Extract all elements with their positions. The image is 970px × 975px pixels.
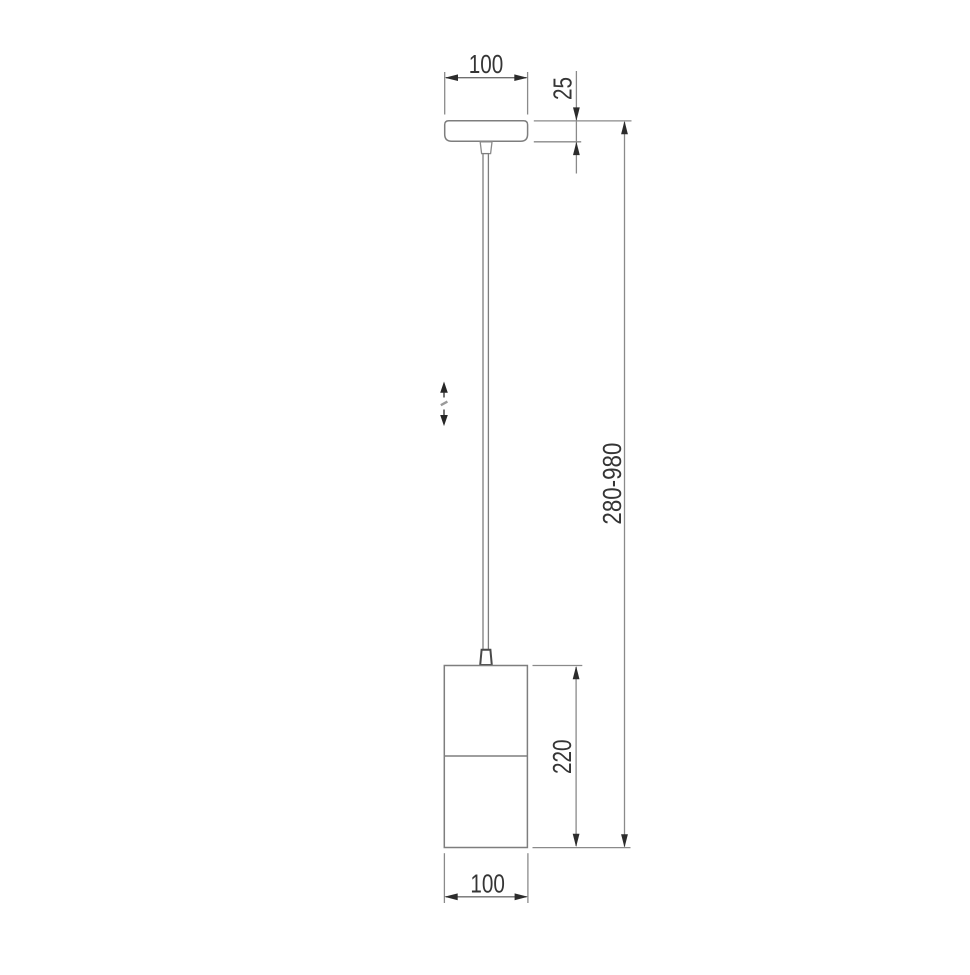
svg-text:220: 220 (547, 739, 577, 774)
svg-text:280-980: 280-980 (597, 443, 627, 525)
svg-text:100: 100 (470, 868, 505, 898)
svg-text:100: 100 (469, 49, 504, 79)
svg-text:25: 25 (548, 77, 578, 100)
